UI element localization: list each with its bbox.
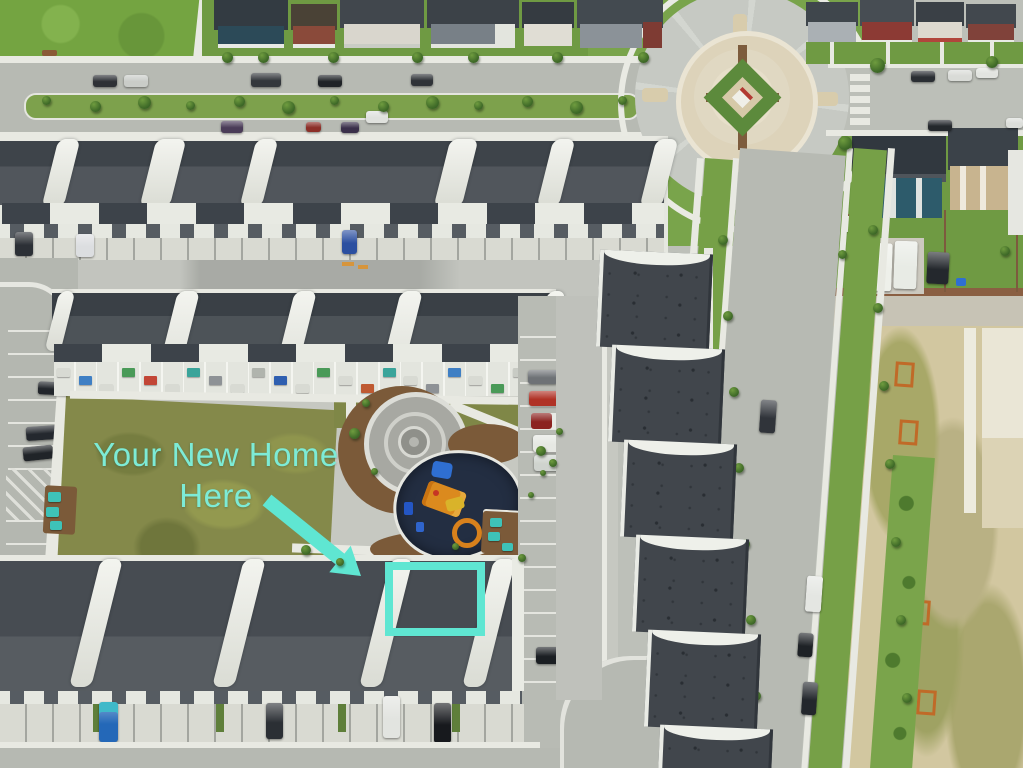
street-tree-icon <box>330 96 339 105</box>
plaza-center-dot <box>409 437 419 447</box>
patio-item <box>361 384 374 393</box>
patio-cell <box>466 362 488 396</box>
house-wall <box>862 22 912 44</box>
courtyard-shrub-icon <box>349 428 360 439</box>
rowA-driveways <box>0 238 664 260</box>
rowA-porch-roofs <box>2 203 664 224</box>
street-tree-icon <box>729 387 739 397</box>
street-tree-icon <box>718 235 728 245</box>
patio-item <box>231 384 244 393</box>
patio-cell <box>184 362 206 396</box>
van <box>759 399 777 433</box>
lot-marker <box>916 689 937 715</box>
patio-item <box>187 368 200 377</box>
annotation-text: Your New Home Here <box>58 434 374 516</box>
rowB-porch-roofs <box>54 344 554 362</box>
house-wall <box>218 26 284 48</box>
rowC-end-wall <box>512 559 524 691</box>
lane-marking <box>342 262 354 266</box>
car <box>928 120 952 131</box>
patio-cell <box>206 362 228 396</box>
patio-item <box>491 384 504 393</box>
street-tree-icon <box>328 52 339 63</box>
patio-item <box>448 368 461 377</box>
patio-cell <box>271 362 293 396</box>
street-tree-icon <box>891 537 901 547</box>
street-tree-icon <box>258 52 269 63</box>
street-tree-icon <box>522 96 533 107</box>
house-wall <box>643 22 662 48</box>
lane-marking <box>358 265 368 269</box>
car <box>529 391 559 406</box>
house-wall <box>431 24 515 48</box>
recycle-bin <box>956 278 966 286</box>
house-wall <box>524 24 572 46</box>
patio-item <box>57 368 70 377</box>
annotation-line2: Here <box>58 475 374 516</box>
patio-item <box>383 368 396 377</box>
courtyard-shrub-icon <box>336 558 344 566</box>
crosswalk-bar <box>850 107 870 114</box>
courtyard-shrub-icon <box>301 545 311 555</box>
patio-item <box>252 368 265 377</box>
courtyard-shrub-icon <box>518 554 526 562</box>
car <box>266 703 283 739</box>
chain-townhouse-unit <box>632 535 749 637</box>
patio-cell <box>488 362 510 396</box>
street-tree-icon <box>885 459 895 469</box>
street-tree-icon <box>282 101 295 114</box>
street-tree-icon <box>90 101 101 112</box>
car <box>383 696 400 738</box>
crosswalk-bar <box>850 85 870 92</box>
yard-tree-icon <box>838 250 847 259</box>
chain-townhouse-unit <box>644 630 761 732</box>
car <box>976 68 998 78</box>
car <box>411 74 433 86</box>
driveway-grass-tuft <box>338 704 346 732</box>
car <box>341 122 359 133</box>
play-dot-red <box>433 490 439 496</box>
patio-cell <box>445 362 467 396</box>
street-tree-icon <box>746 615 756 625</box>
street-tree-icon <box>138 96 151 109</box>
patio-item <box>274 376 287 385</box>
car <box>434 703 451 743</box>
patio-chair <box>488 532 500 541</box>
street-tree-icon <box>638 52 649 63</box>
car <box>99 702 118 742</box>
driveway-grass-tuft <box>452 704 460 732</box>
car <box>1006 118 1023 128</box>
patio-cell <box>314 362 336 396</box>
patio-chair <box>50 521 62 530</box>
car <box>801 682 818 716</box>
lot-marker <box>894 361 915 387</box>
lot-marker <box>898 419 919 445</box>
vacant-lot-edge <box>964 328 976 513</box>
rowA-walls <box>0 224 664 238</box>
patio-cell <box>228 362 250 396</box>
car <box>911 71 935 82</box>
house-wall <box>580 24 642 48</box>
patio-cell <box>249 362 271 396</box>
street-tree-icon <box>378 101 389 112</box>
car <box>805 575 823 612</box>
courtyard-shrub-icon <box>556 428 563 435</box>
street-tree-icon <box>222 52 233 63</box>
patio-item <box>404 376 417 385</box>
car <box>221 121 243 133</box>
patio-item <box>317 368 330 377</box>
front-walk <box>830 42 834 64</box>
street-tree-icon <box>552 52 563 63</box>
play-spring-toy <box>404 502 413 515</box>
crosswalk-bar <box>850 96 870 103</box>
street-tree-icon <box>474 101 483 110</box>
chain-townhouse-unit <box>656 725 773 768</box>
courtyard-shrub-icon <box>536 446 546 456</box>
yard-tree-icon <box>838 136 852 150</box>
street-tree-icon <box>234 96 245 107</box>
patio-item <box>469 376 482 385</box>
house-wall <box>344 24 420 48</box>
courtyard-shrub-icon <box>452 543 459 550</box>
chain-townhouse-unit <box>596 250 713 352</box>
crosswalk-bar <box>850 74 870 81</box>
patio-chair <box>502 543 513 551</box>
car <box>528 370 558 384</box>
vacant-lot-concrete-pad <box>982 328 1023 438</box>
tan-house-wall <box>950 166 1016 210</box>
yard-tree-icon <box>986 56 998 68</box>
patio-item <box>339 376 352 385</box>
car <box>318 75 342 87</box>
front-walk <box>886 42 890 64</box>
splitter-island-west <box>642 88 668 102</box>
play-slide-blue <box>431 460 453 479</box>
yard-tree-icon <box>1000 246 1010 256</box>
courtyard-shrub-icon <box>549 459 557 467</box>
street-tree-icon <box>42 96 51 105</box>
patio-cell <box>163 362 185 396</box>
yard-tree-icon <box>870 58 885 73</box>
street-tree-icon <box>902 693 912 703</box>
car <box>342 230 357 254</box>
street-tree-icon <box>618 96 627 105</box>
street-tree-icon <box>426 96 439 109</box>
car-driving <box>366 111 388 123</box>
courtyard-shrub-icon <box>362 399 370 407</box>
park-field <box>0 0 202 60</box>
driveway-grass-tuft <box>216 704 224 732</box>
front-walk <box>940 42 944 64</box>
street-tree-icon <box>412 52 423 63</box>
annotation-line1: Your New Home <box>58 434 374 475</box>
vacant-lot-tan-pad <box>982 438 1023 528</box>
rv-trailer <box>893 241 918 290</box>
chain-townhouse-unit <box>608 345 725 447</box>
patio-item <box>209 376 222 385</box>
house-wall <box>918 22 962 44</box>
patio-chair <box>490 518 502 527</box>
patio-item <box>122 368 135 377</box>
street-tree-icon <box>468 52 479 63</box>
van <box>251 73 281 87</box>
street-tree-icon <box>868 225 878 235</box>
chain-townhouse-unit <box>620 440 737 542</box>
car <box>93 75 117 87</box>
car <box>926 251 950 284</box>
complex-aisle <box>556 296 602 700</box>
patio-item <box>296 384 309 393</box>
crosswalk-bar <box>850 118 870 125</box>
car <box>124 75 148 87</box>
courtyard-shrub-icon <box>528 492 534 498</box>
patio-item <box>79 376 92 385</box>
play-spring-toy <box>416 522 424 532</box>
car <box>948 70 972 81</box>
courtyard-shrub-icon <box>540 470 546 476</box>
white-building-sliver <box>1008 150 1023 235</box>
house-wall <box>808 22 856 42</box>
car <box>15 232 33 256</box>
house-wall <box>968 24 1014 44</box>
street-tree-icon <box>570 101 583 114</box>
house-wall <box>293 26 335 48</box>
car <box>76 234 94 257</box>
street-tree-icon <box>186 101 195 110</box>
car <box>797 633 814 658</box>
aerial-photo: Your New Home Here <box>0 0 1023 768</box>
courtyard-shrub-icon <box>371 468 378 475</box>
patio-item <box>144 376 157 385</box>
car <box>306 122 321 132</box>
patio-cell <box>336 362 358 396</box>
patio-cell <box>293 362 315 396</box>
